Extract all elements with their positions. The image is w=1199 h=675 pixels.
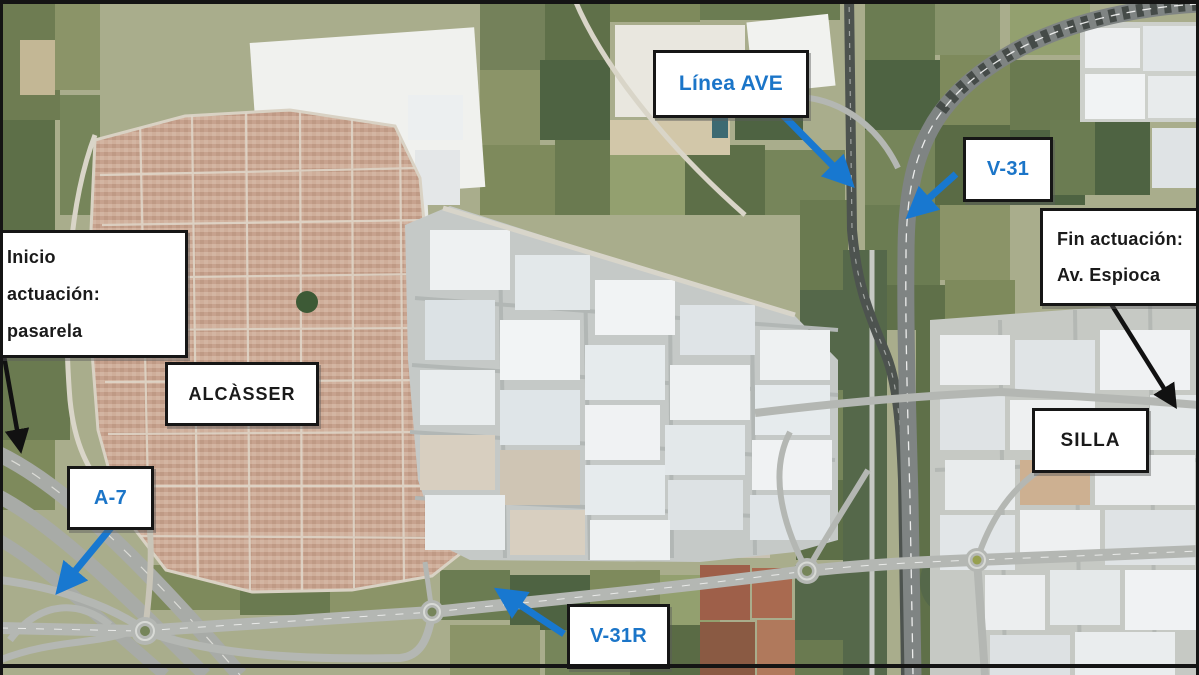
callout-a7: A-7 bbox=[67, 466, 154, 530]
town-plaza-trees bbox=[296, 291, 318, 313]
callout-fin-line1: Fin actuación: bbox=[1057, 221, 1183, 257]
callout-inicio-line1: Inicio bbox=[7, 239, 56, 276]
callout-linea-ave-label: Línea AVE bbox=[679, 72, 783, 96]
map-figure: Línea AVE V-31 Fin actuación: Av. Espioc… bbox=[0, 0, 1199, 675]
callout-alcasser: ALCÀSSER bbox=[165, 362, 319, 426]
callout-linea-ave: Línea AVE bbox=[653, 50, 809, 118]
callout-v31-label: V-31 bbox=[987, 158, 1029, 181]
callout-fin-actuacion: Fin actuación: Av. Espioca bbox=[1040, 208, 1199, 306]
callout-v31r: V-31R bbox=[567, 604, 670, 669]
callout-v31r-label: V-31R bbox=[590, 625, 647, 648]
callout-silla: SILLA bbox=[1032, 408, 1149, 473]
callout-v31: V-31 bbox=[963, 137, 1053, 202]
callout-inicio-actuacion: Inicio actuación: pasarela bbox=[0, 230, 188, 358]
callout-inicio-line3: pasarela bbox=[7, 313, 82, 350]
callout-a7-label: A-7 bbox=[94, 487, 127, 510]
callout-alcasser-label: ALCÀSSER bbox=[188, 384, 295, 405]
callout-inicio-line2: actuación: bbox=[7, 276, 100, 313]
callout-fin-line2: Av. Espioca bbox=[1057, 257, 1160, 293]
callout-silla-label: SILLA bbox=[1061, 430, 1121, 452]
